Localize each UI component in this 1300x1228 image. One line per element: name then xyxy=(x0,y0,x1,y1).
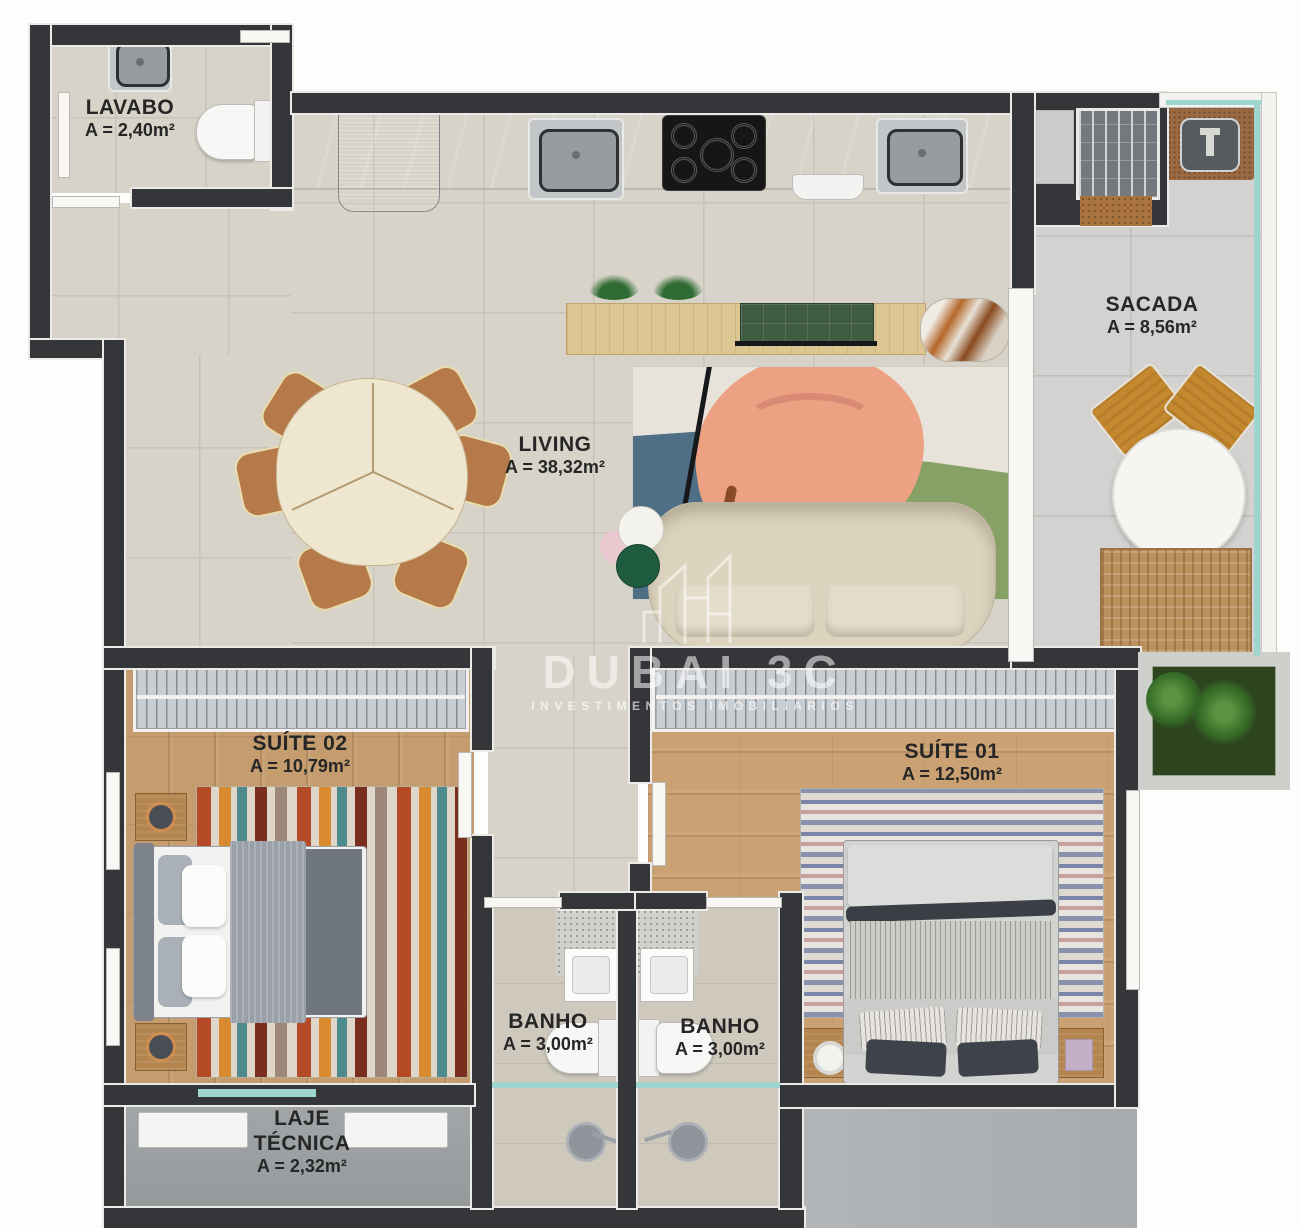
room-area: A = 3,00m² xyxy=(640,1039,800,1060)
floor-corridor xyxy=(488,655,638,905)
balcony-table xyxy=(1112,428,1246,562)
wall xyxy=(272,25,292,209)
table-seam xyxy=(372,383,374,472)
sink-faucet xyxy=(136,58,144,66)
bbq-faucet-head xyxy=(1200,128,1220,135)
fridge xyxy=(338,108,440,212)
room-area: A = 38,32m² xyxy=(455,457,655,478)
tv-unit xyxy=(740,303,874,343)
burner xyxy=(671,123,697,149)
wall xyxy=(630,648,650,782)
window-suite01 xyxy=(1126,790,1140,990)
rug-shape-salmon-arc xyxy=(743,393,877,453)
niche-balcony xyxy=(1036,110,1074,184)
bed-suite02 xyxy=(133,846,367,1018)
wall xyxy=(132,189,292,207)
sink-basin xyxy=(539,129,619,191)
decor-plant-leaves xyxy=(652,274,704,300)
room-area: A = 2,32m² xyxy=(232,1156,372,1177)
sink-banho2 xyxy=(640,948,694,1002)
balcony-glass-rail xyxy=(1254,100,1260,656)
wall xyxy=(1012,93,1034,293)
wall xyxy=(780,1085,1138,1107)
pillow-white xyxy=(182,865,226,927)
headboard xyxy=(134,843,154,1021)
balcony-bench xyxy=(1100,548,1252,654)
bbq-sink xyxy=(1180,118,1240,172)
lamp xyxy=(149,1035,173,1059)
room-name: SUÍTE 02 xyxy=(200,732,400,756)
window-laje-glass xyxy=(198,1089,316,1097)
grill xyxy=(1076,108,1160,200)
wall xyxy=(104,648,494,668)
bbq-faucet xyxy=(1206,134,1214,156)
room-name: LAVABO xyxy=(40,96,220,120)
nightstand-suite02 xyxy=(135,793,187,841)
wardrobe-suite02 xyxy=(133,662,469,732)
pillow-dark xyxy=(957,1039,1039,1077)
room-label-laje: LAJE TÉCNICA A = 2,32m² xyxy=(232,1106,372,1177)
wall xyxy=(636,893,706,909)
door-entry xyxy=(52,196,120,208)
lamp xyxy=(149,805,173,829)
room-name: SACADA xyxy=(1052,293,1252,317)
nightstand-suite02 xyxy=(135,1023,187,1071)
window-suite02 xyxy=(106,772,120,870)
grill-coals xyxy=(1080,196,1152,226)
lamp-round xyxy=(813,1041,847,1075)
room-label-suite01: SUÍTE 01 A = 12,50m² xyxy=(852,740,1052,785)
sink-bowl xyxy=(572,956,610,994)
room-name: LIVING xyxy=(455,433,655,457)
cooktop xyxy=(662,115,766,191)
door-banho1 xyxy=(484,897,562,908)
decor-book xyxy=(1065,1039,1093,1071)
room-name: SUÍTE 01 xyxy=(852,740,1052,764)
kitchen-sink-2 xyxy=(876,118,968,194)
door-suite02 xyxy=(458,752,472,838)
kitchen-sink xyxy=(528,118,624,200)
duvet-top xyxy=(848,845,1052,907)
balcony-parapet xyxy=(1262,93,1276,668)
room-area: A = 3,00m² xyxy=(468,1034,628,1055)
table-seam xyxy=(372,471,454,510)
wall xyxy=(472,648,492,750)
balcony-chair xyxy=(1098,380,1174,436)
room-area: A = 2,40m² xyxy=(40,120,220,141)
wall xyxy=(560,893,638,909)
planter xyxy=(1138,652,1290,790)
balcony-glass-rail xyxy=(1166,100,1262,105)
wall xyxy=(292,93,1014,113)
room-name: BANHO xyxy=(640,1015,800,1039)
wardrobe-suite01 xyxy=(652,662,1124,732)
pillow-dark xyxy=(865,1039,947,1077)
room-label-lavabo: LAVABO A = 2,40m² xyxy=(40,96,220,141)
shower-glass-banho2 xyxy=(636,1082,780,1088)
marble-side-table xyxy=(920,298,1010,362)
sink-basin xyxy=(887,129,963,187)
sink-basin xyxy=(116,42,170,87)
room-area: A = 8,56m² xyxy=(1052,317,1252,338)
sink-faucet xyxy=(918,149,926,157)
shower-drain-banho2 xyxy=(668,1122,708,1162)
room-label-suite02: SUÍTE 02 A = 10,79m² xyxy=(200,732,400,777)
room-name: BANHO xyxy=(468,1010,628,1034)
burner xyxy=(731,157,757,183)
pillow-white xyxy=(182,935,226,997)
soundbar xyxy=(735,341,877,346)
room-label-living: LIVING A = 38,32m² xyxy=(455,433,655,478)
nightstand-suite01 xyxy=(1052,1028,1104,1078)
burner xyxy=(671,157,697,183)
decor-plant-leaves xyxy=(588,274,640,300)
dining-table xyxy=(276,378,468,566)
window-suite02 xyxy=(106,948,120,1046)
shower-drain-banho1 xyxy=(566,1122,606,1162)
blanket xyxy=(230,841,306,1023)
sofa-cushion xyxy=(825,585,965,637)
door-suite01 xyxy=(652,782,666,866)
sink-bowl xyxy=(650,956,688,994)
bed-suite01 xyxy=(843,840,1059,1084)
door-banho2 xyxy=(706,897,782,908)
burner xyxy=(731,123,757,149)
room-name: LAJE TÉCNICA xyxy=(232,1106,372,1156)
bed-runner xyxy=(306,849,362,1015)
room-area: A = 12,50m² xyxy=(852,764,1052,785)
floor-service-area xyxy=(800,1092,1137,1228)
room-label-sacada: SACADA A = 8,56m² xyxy=(1052,293,1252,338)
sink-banho1 xyxy=(564,948,618,1002)
room-label-banho2: BANHO A = 3,00m² xyxy=(640,1015,800,1060)
sofa xyxy=(648,502,996,656)
sofa-cushion xyxy=(675,585,815,637)
table-seam xyxy=(292,471,374,510)
sliding-door-balcony xyxy=(1008,288,1034,662)
plant xyxy=(1192,680,1256,744)
floor-plan: LAVABO A = 2,40m² SACADA A = 8,56m² LIVI… xyxy=(0,0,1300,1228)
wall-hung-fixture xyxy=(792,174,864,200)
room-area: A = 10,79m² xyxy=(200,756,400,777)
wall xyxy=(30,25,50,358)
floor-hall xyxy=(33,203,291,358)
window-lavabo xyxy=(240,30,290,43)
wall xyxy=(104,1208,804,1228)
burner-center xyxy=(700,138,734,172)
sheet-striped xyxy=(850,921,1052,999)
shower-glass-banho1 xyxy=(492,1082,618,1088)
room-label-banho1: BANHO A = 3,00m² xyxy=(468,1010,628,1055)
side-table-green xyxy=(616,544,660,588)
